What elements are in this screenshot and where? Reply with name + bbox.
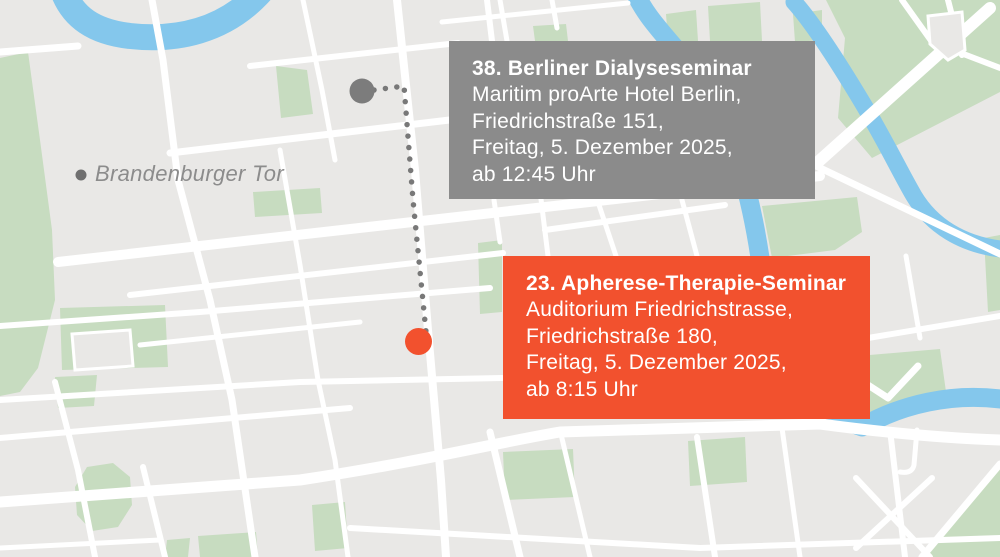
event-venue: Maritim proArte Hotel Berlin, [472,82,797,109]
venue-marker-dialyseseminar [350,79,375,104]
event-time: ab 12:45 Uhr [472,162,797,189]
event-date: Freitag, 5. Dezember 2025, [526,350,852,377]
event-title: 38. Berliner Dialyseseminar [472,55,797,82]
seminar-map-infographic: Brandenburger Tor 38. Berliner Dialysese… [0,0,1000,557]
event-title: 23. Apherese-Therapie-Seminar [526,270,852,297]
event-date: Freitag, 5. Dezember 2025, [472,135,797,162]
event-time: ab 8:15 Uhr [526,377,852,404]
event-card-apherese-seminar: 23. Apherese-Therapie-Seminar Auditorium… [503,256,870,419]
event-card-dialyseseminar: 38. Berliner Dialyseseminar Maritim proA… [449,41,815,199]
brandenburger-tor-dot [76,170,87,181]
event-address: Friedrichstraße 151, [472,109,797,136]
event-address: Friedrichstraße 180, [526,324,852,351]
venue-marker-apherese-seminar [405,328,432,355]
event-venue: Auditorium Friedrichstrasse, [526,297,852,324]
poi-label-brandenburger-tor: Brandenburger Tor [95,161,284,187]
